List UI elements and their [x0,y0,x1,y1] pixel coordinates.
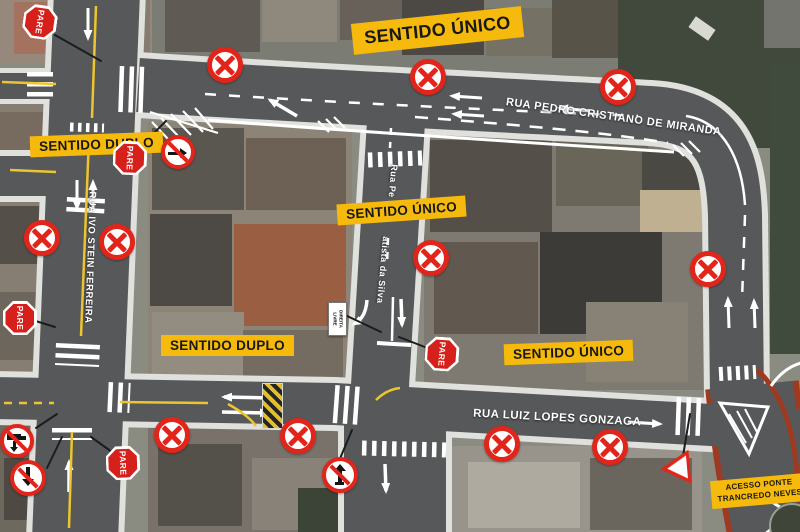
label-sentido-duplo-center: SENTIDO DUPLO [161,335,294,356]
no-truck-access-sign [0,424,34,458]
no-entry-sign [600,69,636,105]
no-right-turn-sign [161,135,195,169]
no-entry-sign [154,417,190,453]
no-entry-sign [280,418,316,454]
yellow-black-hatch-strip [262,383,283,429]
no-entry-sign [410,59,446,95]
no-entry-sign [484,426,520,462]
traffic-direction-map: RUA PEDRO CRISTIANO DE MIRANDA RUA IVO S… [0,0,800,532]
no-entry-sign [413,240,449,276]
stop-sign-pare: PARE [3,301,37,335]
no-entry-sign [24,220,60,256]
no-entry-sign [592,429,628,465]
no-entry-sign [207,47,243,83]
no-entry-ahead-sign [322,457,358,493]
no-entry-sign [99,224,135,260]
direita-livre-sign: DIREITA LIVRE [328,302,347,336]
no-entry-sign [690,251,726,287]
no-through-traffic-sign [10,460,46,496]
